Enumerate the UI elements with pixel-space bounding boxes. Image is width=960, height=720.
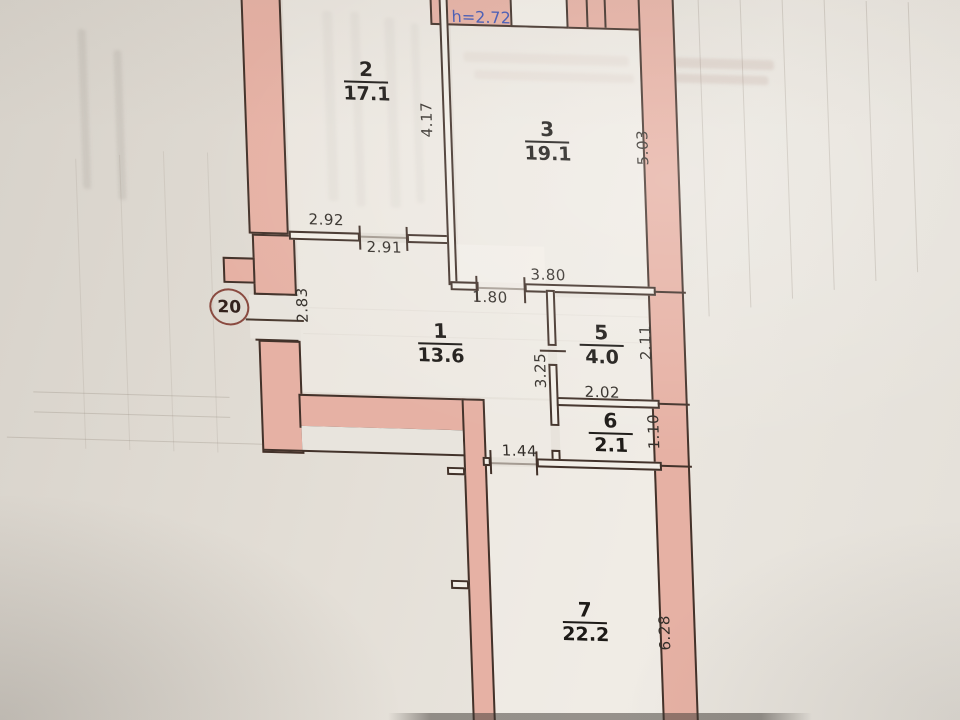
wall-entry-upper bbox=[252, 234, 297, 297]
room-1-interior bbox=[297, 240, 550, 399]
room-number: 1 bbox=[416, 320, 464, 342]
room-area: 17.1 bbox=[343, 84, 391, 105]
dim-5-03: 5.03 bbox=[633, 130, 652, 166]
dim-2-92: 2.92 bbox=[308, 210, 344, 229]
bleed-gridline bbox=[7, 437, 262, 445]
room-area: 2.1 bbox=[589, 436, 634, 457]
room-area: 4.0 bbox=[580, 348, 625, 369]
dim-2-11: 2.11 bbox=[636, 325, 655, 361]
room-label-7: 7 22.2 bbox=[561, 599, 610, 646]
dim-6-28: 6.28 bbox=[655, 615, 674, 651]
dim-2-83: 2.83 bbox=[293, 287, 312, 323]
room-label-1: 1 13.6 bbox=[416, 320, 465, 367]
bleed-gridline bbox=[163, 151, 174, 451]
room-number: 2 bbox=[342, 58, 390, 80]
neighbor-wall-stub bbox=[451, 580, 469, 590]
bleed-gridline bbox=[34, 411, 230, 417]
room-area: 22.2 bbox=[562, 625, 610, 646]
bleed-gridline bbox=[33, 391, 229, 397]
dim-1-10: 1.10 bbox=[644, 414, 663, 450]
door-room7-threshold bbox=[491, 462, 537, 465]
room-number: 5 bbox=[579, 322, 624, 344]
room-label-3: 3 19.1 bbox=[523, 118, 572, 165]
bleed-gridline bbox=[75, 159, 86, 449]
dim-3-25: 3.25 bbox=[531, 353, 550, 389]
bleed-gridline bbox=[866, 1, 877, 281]
scanned-floor-plan-photo: 1 13.6 2 17.1 3 19.1 5 4.0 6 2.1 7 22.2 bbox=[0, 0, 960, 720]
window-room3 bbox=[509, 0, 568, 29]
neighbor-wall-stub bbox=[447, 467, 465, 476]
room-label-2: 2 17.1 bbox=[342, 58, 391, 105]
bleed-text-smudge bbox=[113, 50, 126, 200]
bleed-gridline bbox=[740, 0, 752, 308]
paper-edge-shadow bbox=[388, 713, 812, 720]
dim-3-80: 3.80 bbox=[530, 265, 566, 284]
room-number: 6 bbox=[588, 410, 633, 432]
bleed-gridline bbox=[908, 2, 918, 272]
dim-1-44: 1.44 bbox=[501, 441, 537, 460]
dim-1-80: 1.80 bbox=[472, 288, 508, 307]
room-area: 19.1 bbox=[524, 144, 572, 165]
dim-4-17: 4.17 bbox=[417, 102, 436, 138]
floor-plan: 1 13.6 2 17.1 3 19.1 5 4.0 6 2.1 7 22.2 bbox=[0, 0, 960, 720]
dim-2-02: 2.02 bbox=[584, 383, 620, 402]
room-label-6: 6 2.1 bbox=[588, 410, 634, 457]
wall-room1-room5-a bbox=[546, 290, 557, 346]
room-label-5: 5 4.0 bbox=[579, 322, 625, 369]
room-number: 7 bbox=[561, 599, 609, 621]
dim-2-91: 2.91 bbox=[366, 238, 402, 257]
wall-room2-left bbox=[240, 0, 289, 235]
bleed-text-smudge bbox=[78, 29, 92, 189]
room-area: 13.6 bbox=[417, 346, 465, 367]
room-number: 3 bbox=[523, 118, 571, 140]
room-7-interior bbox=[487, 466, 663, 720]
apartment-number-badge: 20 bbox=[209, 288, 250, 326]
bleed-gridline bbox=[697, 0, 709, 316]
bleed-gridline bbox=[824, 0, 835, 290]
bleed-gridline bbox=[782, 0, 793, 299]
ceiling-height-note: h=2.72 bbox=[451, 7, 511, 28]
apartment-number: 20 bbox=[217, 297, 241, 318]
wall-entry-stub bbox=[223, 257, 256, 284]
